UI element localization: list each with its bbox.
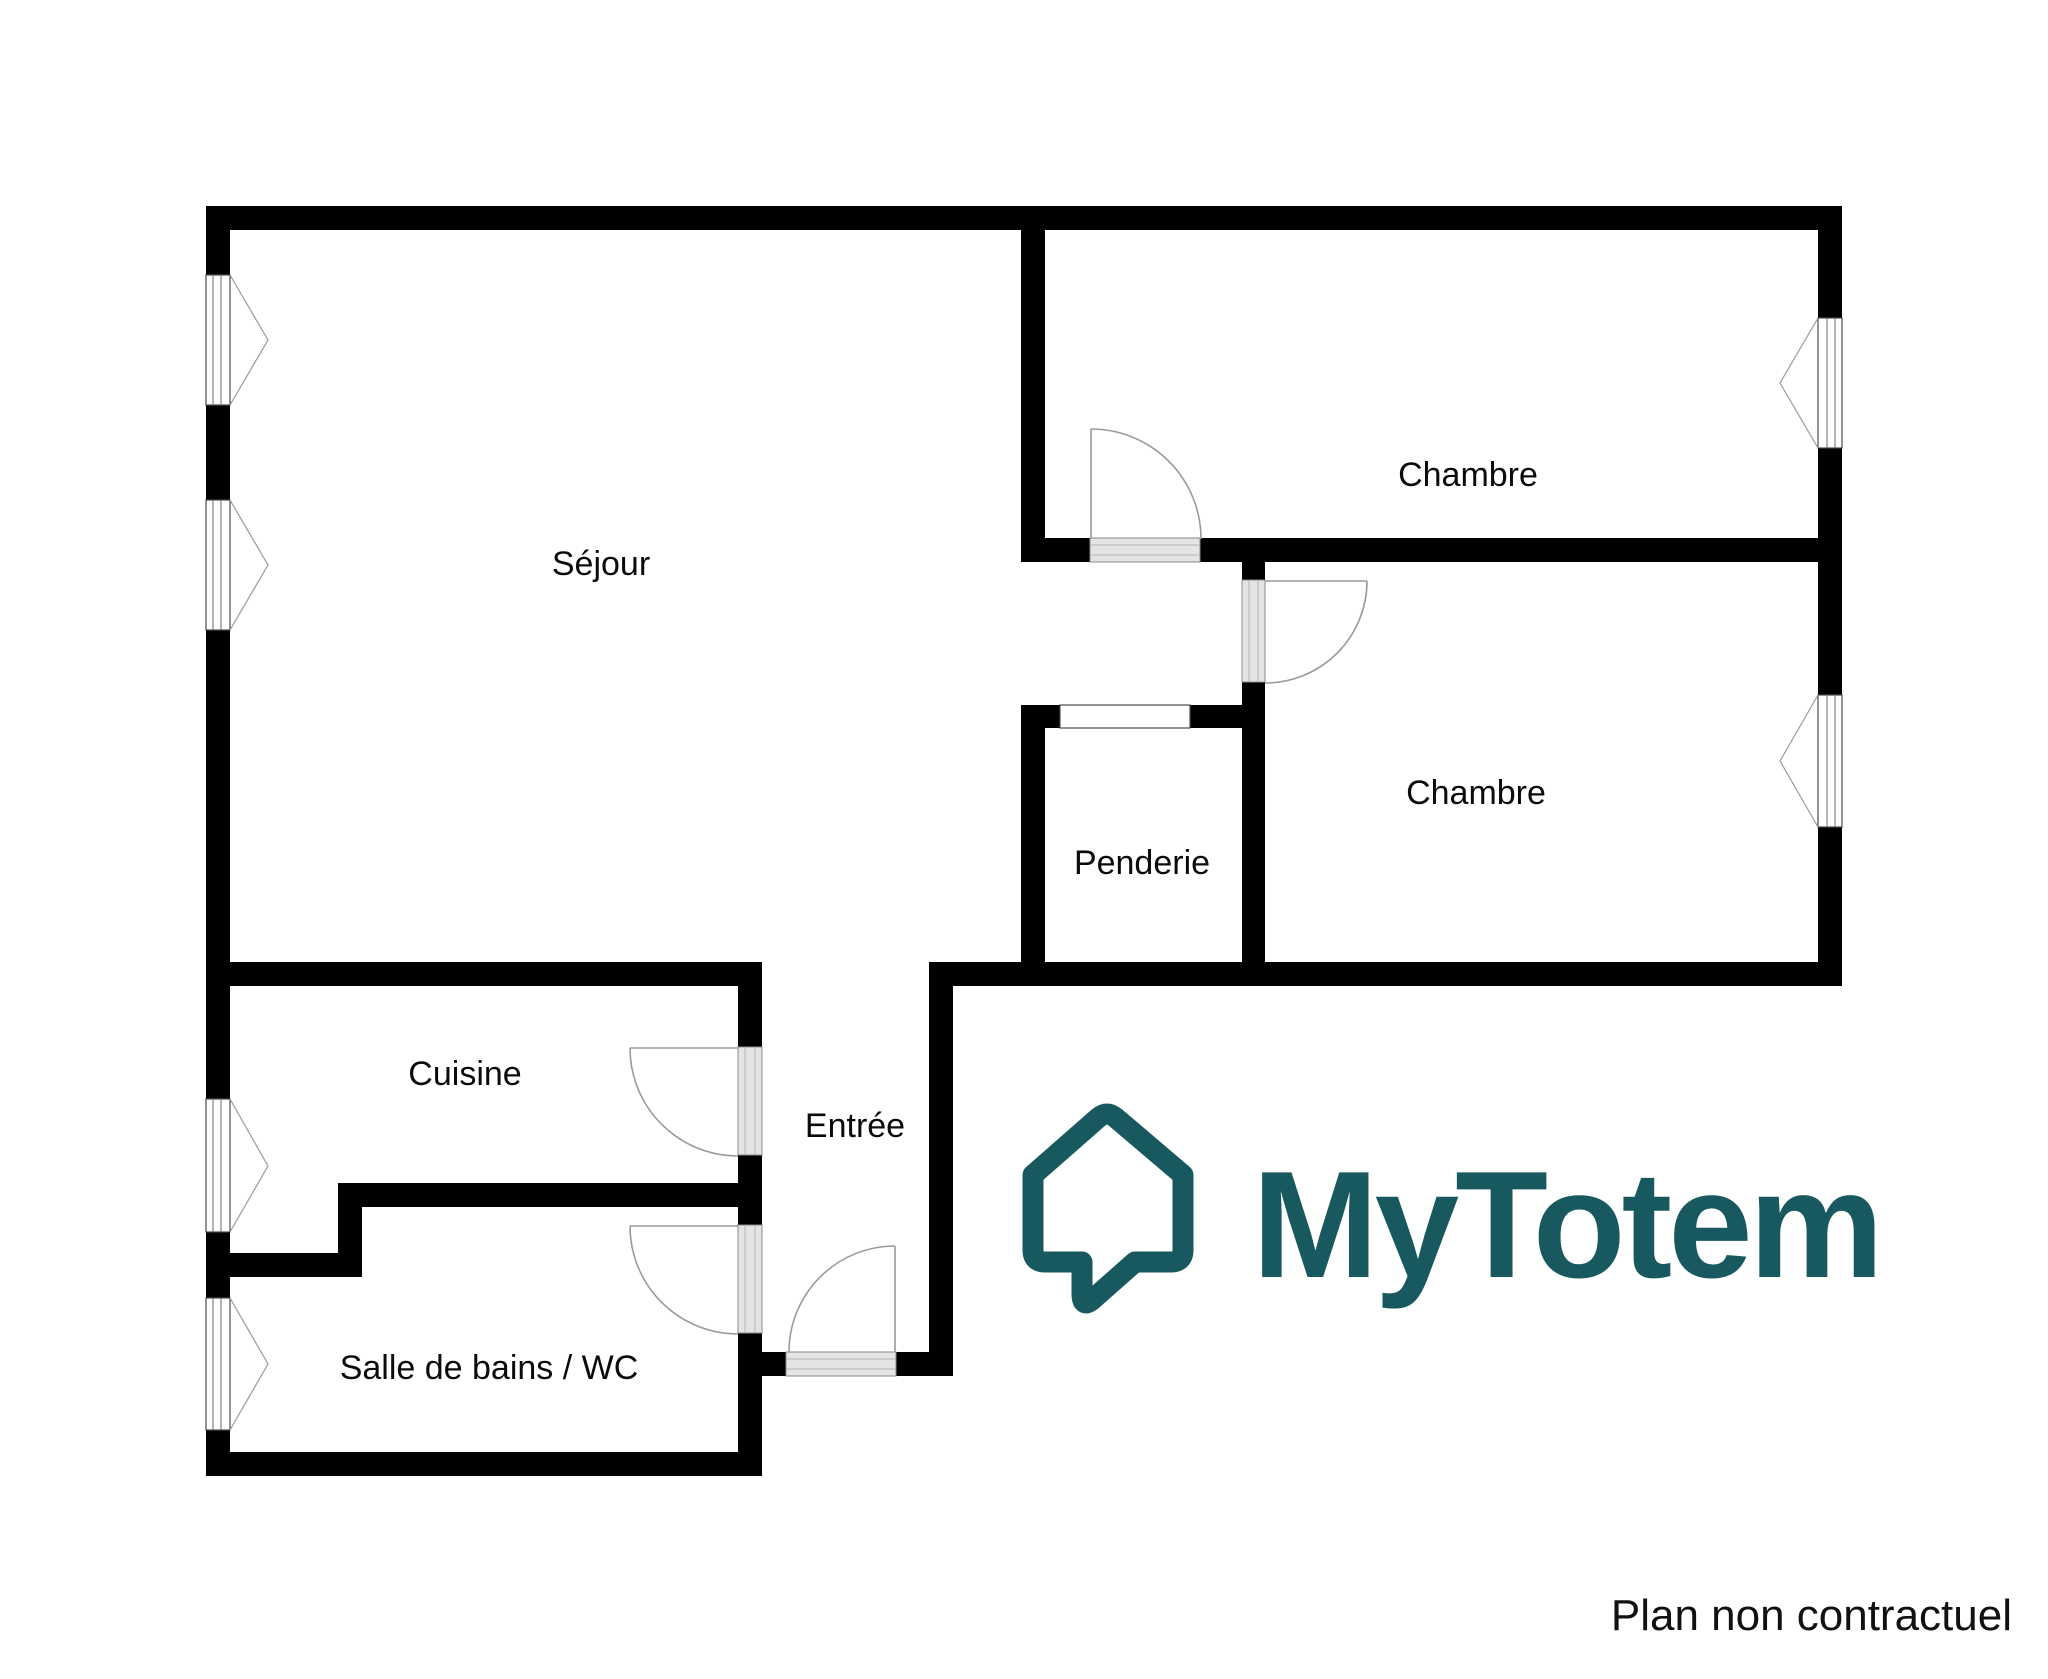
door-front [786, 1246, 896, 1376]
wall-bathroom-right-lower [738, 1333, 762, 1476]
wall-entree-bottom-right [896, 1352, 953, 1376]
wall-bathroom-bottom [206, 1452, 762, 1476]
window-sejour-1 [206, 275, 268, 405]
wall-chambre-top-bottom-left [1021, 538, 1090, 562]
room-label-penderie: Penderie [1074, 844, 1210, 882]
wall-kitchen-bath-divider-lower [206, 1253, 362, 1277]
floor-plan-page: Séjour Chambre Chambre Penderie Cuisine … [0, 0, 2048, 1679]
room-label-chambre-right: Chambre [1406, 774, 1546, 812]
room-label-cuisine: Cuisine [408, 1055, 521, 1093]
window-bathroom [206, 1298, 268, 1430]
wall-penderie-top-right [1190, 705, 1265, 728]
mytotem-logo-text: MyTotem [1252, 1140, 1880, 1310]
wall-kitchen-top [206, 962, 762, 986]
wall-penderie-left [1021, 705, 1045, 986]
window-chambre-right [1780, 695, 1842, 827]
door-chambre-top [1090, 429, 1201, 562]
mytotem-logo-house-icon [1033, 1114, 1183, 1303]
wall-chambre-top-bottom-right [1200, 538, 1818, 562]
door-bathroom [630, 1225, 762, 1334]
floor-plan-drawing: Séjour Chambre Chambre Penderie Cuisine … [0, 0, 2048, 1679]
wall-entree-right [929, 962, 953, 1376]
wall-sejour-chambre-divider [1021, 230, 1045, 562]
door-kitchen [630, 1047, 762, 1156]
opening-penderie [1060, 705, 1190, 728]
wall-main-lower [929, 962, 1842, 986]
door-chambre-right [1242, 580, 1367, 683]
wall-hall-chambre-right-upper [1242, 538, 1265, 580]
window-kitchen [206, 1099, 268, 1232]
window-sejour-2 [206, 500, 268, 630]
wall-outer-top [206, 206, 1842, 230]
room-label-salle-de-bains: Salle de bains / WC [340, 1349, 639, 1387]
room-label-chambre-top: Chambre [1398, 456, 1538, 494]
disclaimer-text: Plan non contractuel [1611, 1591, 2012, 1640]
room-label-sejour: Séjour [552, 545, 650, 583]
window-chambre-top [1780, 318, 1842, 448]
wall-kitchen-bath-divider-upper [338, 1183, 762, 1207]
mytotem-logo: MyTotem [1033, 1114, 1880, 1310]
room-label-entree: Entrée [805, 1107, 905, 1145]
